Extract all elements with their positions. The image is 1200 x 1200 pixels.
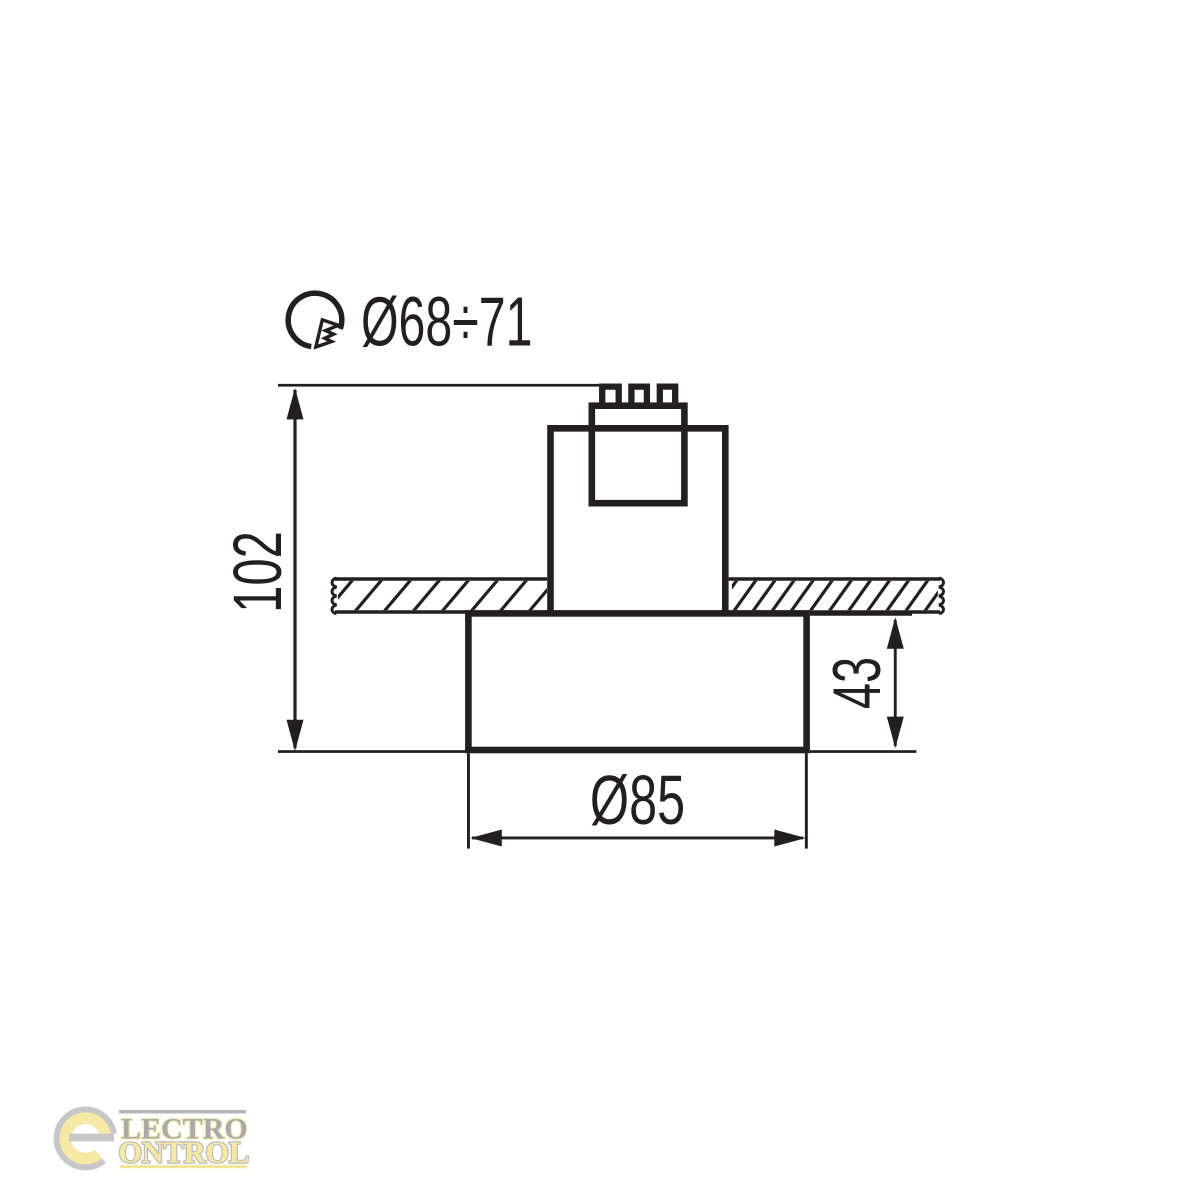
svg-text:Ø68÷71: Ø68÷71 (361, 283, 533, 361)
svg-text:102: 102 (219, 531, 296, 613)
svg-text:Ø85: Ø85 (590, 761, 685, 839)
svg-text:43: 43 (819, 657, 895, 709)
svg-text:ONTROL: ONTROL (119, 1135, 249, 1169)
